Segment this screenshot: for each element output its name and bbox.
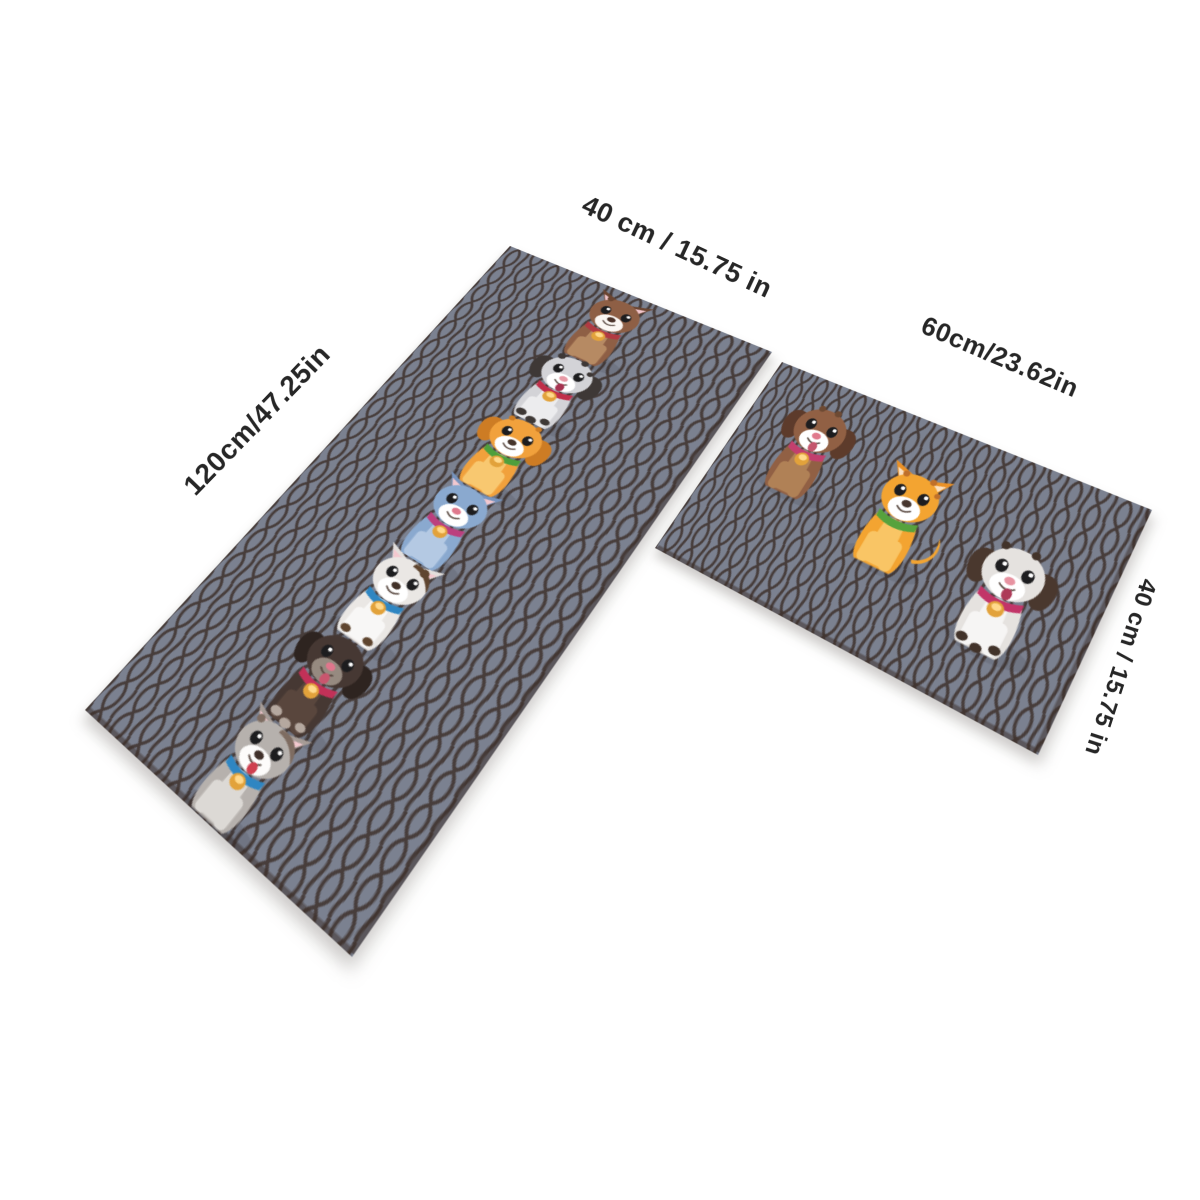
runner-mat: [85, 246, 772, 957]
product-image: 40 cm / 15.75 in 120cm/47.25in 60cm/23.6…: [0, 0, 1200, 1200]
square-mat-graphic: [655, 362, 1152, 755]
runner-mat-pattern: [85, 246, 772, 957]
square-width-label: 60cm/23.62in: [917, 310, 1084, 404]
runner-mat-graphic: [85, 246, 772, 957]
square-mat: [655, 362, 1152, 755]
